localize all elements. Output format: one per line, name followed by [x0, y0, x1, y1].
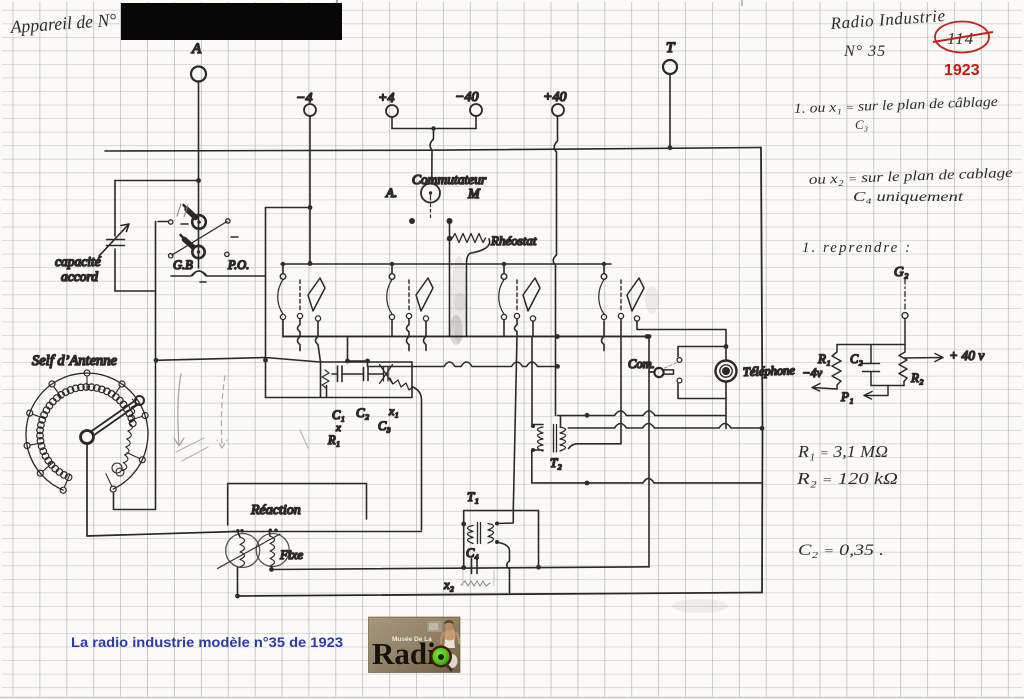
svg-text:C₄ uniquement: C₄ uniquement — [853, 189, 965, 204]
svg-text:R₁: R₁ — [327, 433, 340, 447]
svg-text:Commutateur: Commutateur — [412, 172, 487, 187]
svg-text:Self d’Antenne: Self d’Antenne — [32, 353, 118, 369]
svg-text:C₂: C₂ — [850, 352, 863, 366]
svg-text:R₂: R₂ — [910, 370, 924, 385]
svg-text:C₃: C₃ — [378, 419, 391, 433]
svg-text:Téléphone: Téléphone — [743, 363, 796, 379]
svg-text:G₂: G₂ — [894, 264, 909, 279]
svg-text:C₂: C₂ — [356, 405, 370, 420]
svg-text:R₂ = 120 kΩ: R₂ = 120 kΩ — [796, 469, 898, 488]
svg-text:−40: −40 — [455, 90, 478, 105]
svg-text:accord: accord — [61, 269, 98, 284]
svg-text:x₂: x₂ — [443, 578, 455, 592]
svg-text:Rhéostat: Rhéostat — [490, 233, 537, 248]
svg-text:+4: +4 — [378, 91, 394, 106]
svg-text:+40: +40 — [543, 90, 566, 105]
svg-text:Fixe: Fixe — [279, 547, 303, 562]
svg-text:C₃: C₃ — [855, 117, 868, 132]
svg-text:Radi: Radi — [372, 636, 436, 671]
svg-text:−4v: −4v — [802, 366, 823, 380]
svg-text:x₁: x₁ — [388, 404, 399, 418]
svg-text:R₁: R₁ — [817, 351, 830, 366]
svg-text:N° 35: N° 35 — [843, 43, 886, 60]
svg-text:C₁: C₁ — [332, 408, 345, 422]
svg-text:G.B: G.B — [173, 258, 193, 272]
svg-text:+ 40 v: + 40 v — [949, 348, 984, 363]
svg-text:La radio industrie modèle n°35: La radio industrie modèle n°35 de 1923 — [71, 634, 343, 650]
svg-text:1. reprendre :: 1. reprendre : — [802, 240, 912, 256]
svg-text:capacité: capacité — [55, 254, 102, 269]
svg-text:T₁: T₁ — [467, 489, 479, 504]
svg-text:C₂ = 0,35 .: C₂ = 0,35 . — [798, 542, 884, 559]
svg-text:A: A — [191, 41, 202, 57]
svg-text:T₂: T₂ — [550, 455, 562, 470]
svg-text:M: M — [467, 187, 481, 202]
svg-text:1923: 1923 — [944, 62, 980, 79]
svg-text:P₁: P₁ — [840, 389, 853, 404]
svg-text:Com.: Com. — [628, 357, 655, 371]
svg-text:P.O.: P.O. — [227, 258, 249, 272]
svg-text:Réaction: Réaction — [250, 503, 301, 518]
svg-text:R₁ = 3,1 MΩ: R₁ = 3,1 MΩ — [797, 442, 888, 461]
svg-text:A.: A. — [385, 185, 397, 200]
